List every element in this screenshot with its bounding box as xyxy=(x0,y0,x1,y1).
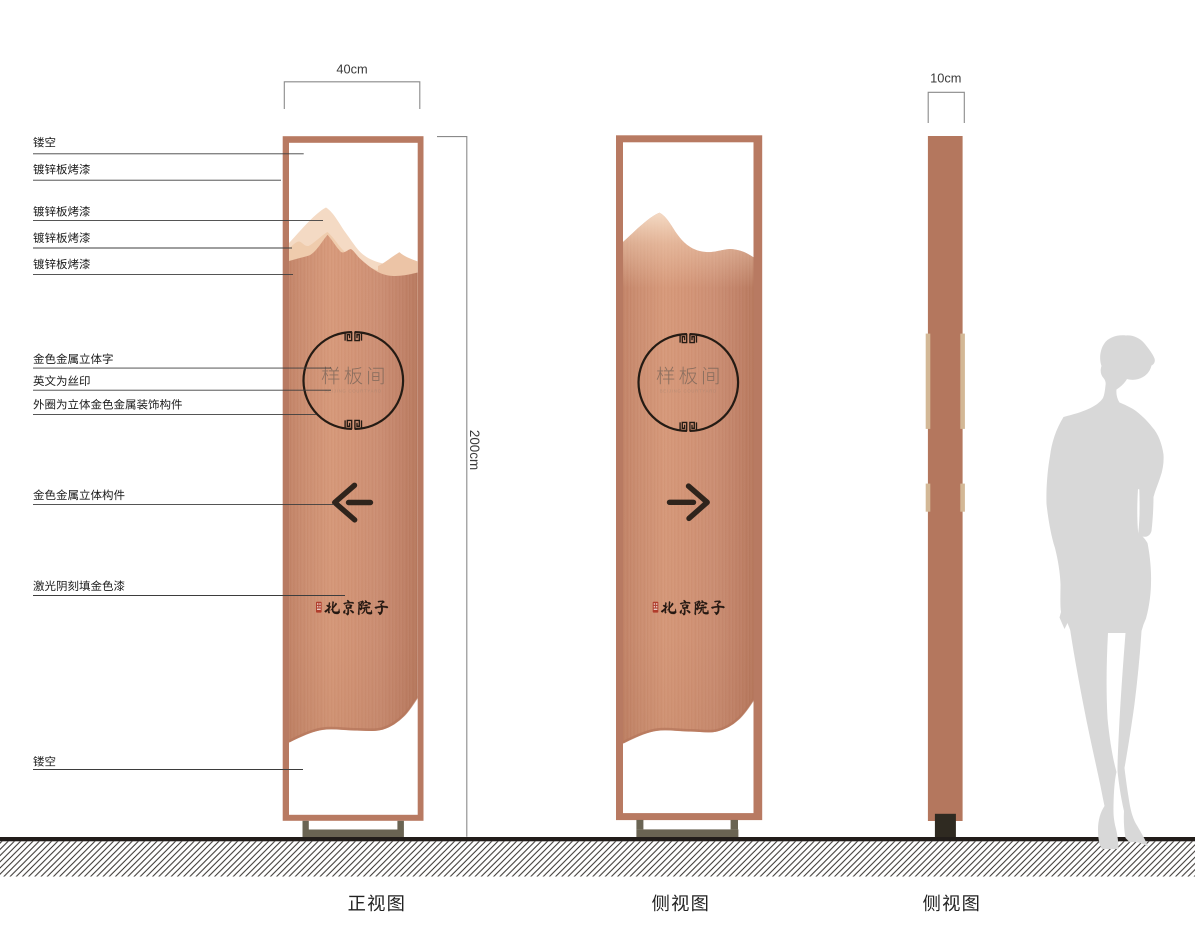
svg-text:40cm: 40cm xyxy=(336,62,367,77)
svg-text:10cm: 10cm xyxy=(930,71,961,86)
svg-text:BEIJING COURTYARD: BEIJING COURTYARD xyxy=(660,389,717,394)
svg-text:BEIJING COURTYARD: BEIJING COURTYARD xyxy=(325,389,382,394)
svg-text:200cm: 200cm xyxy=(467,430,482,470)
